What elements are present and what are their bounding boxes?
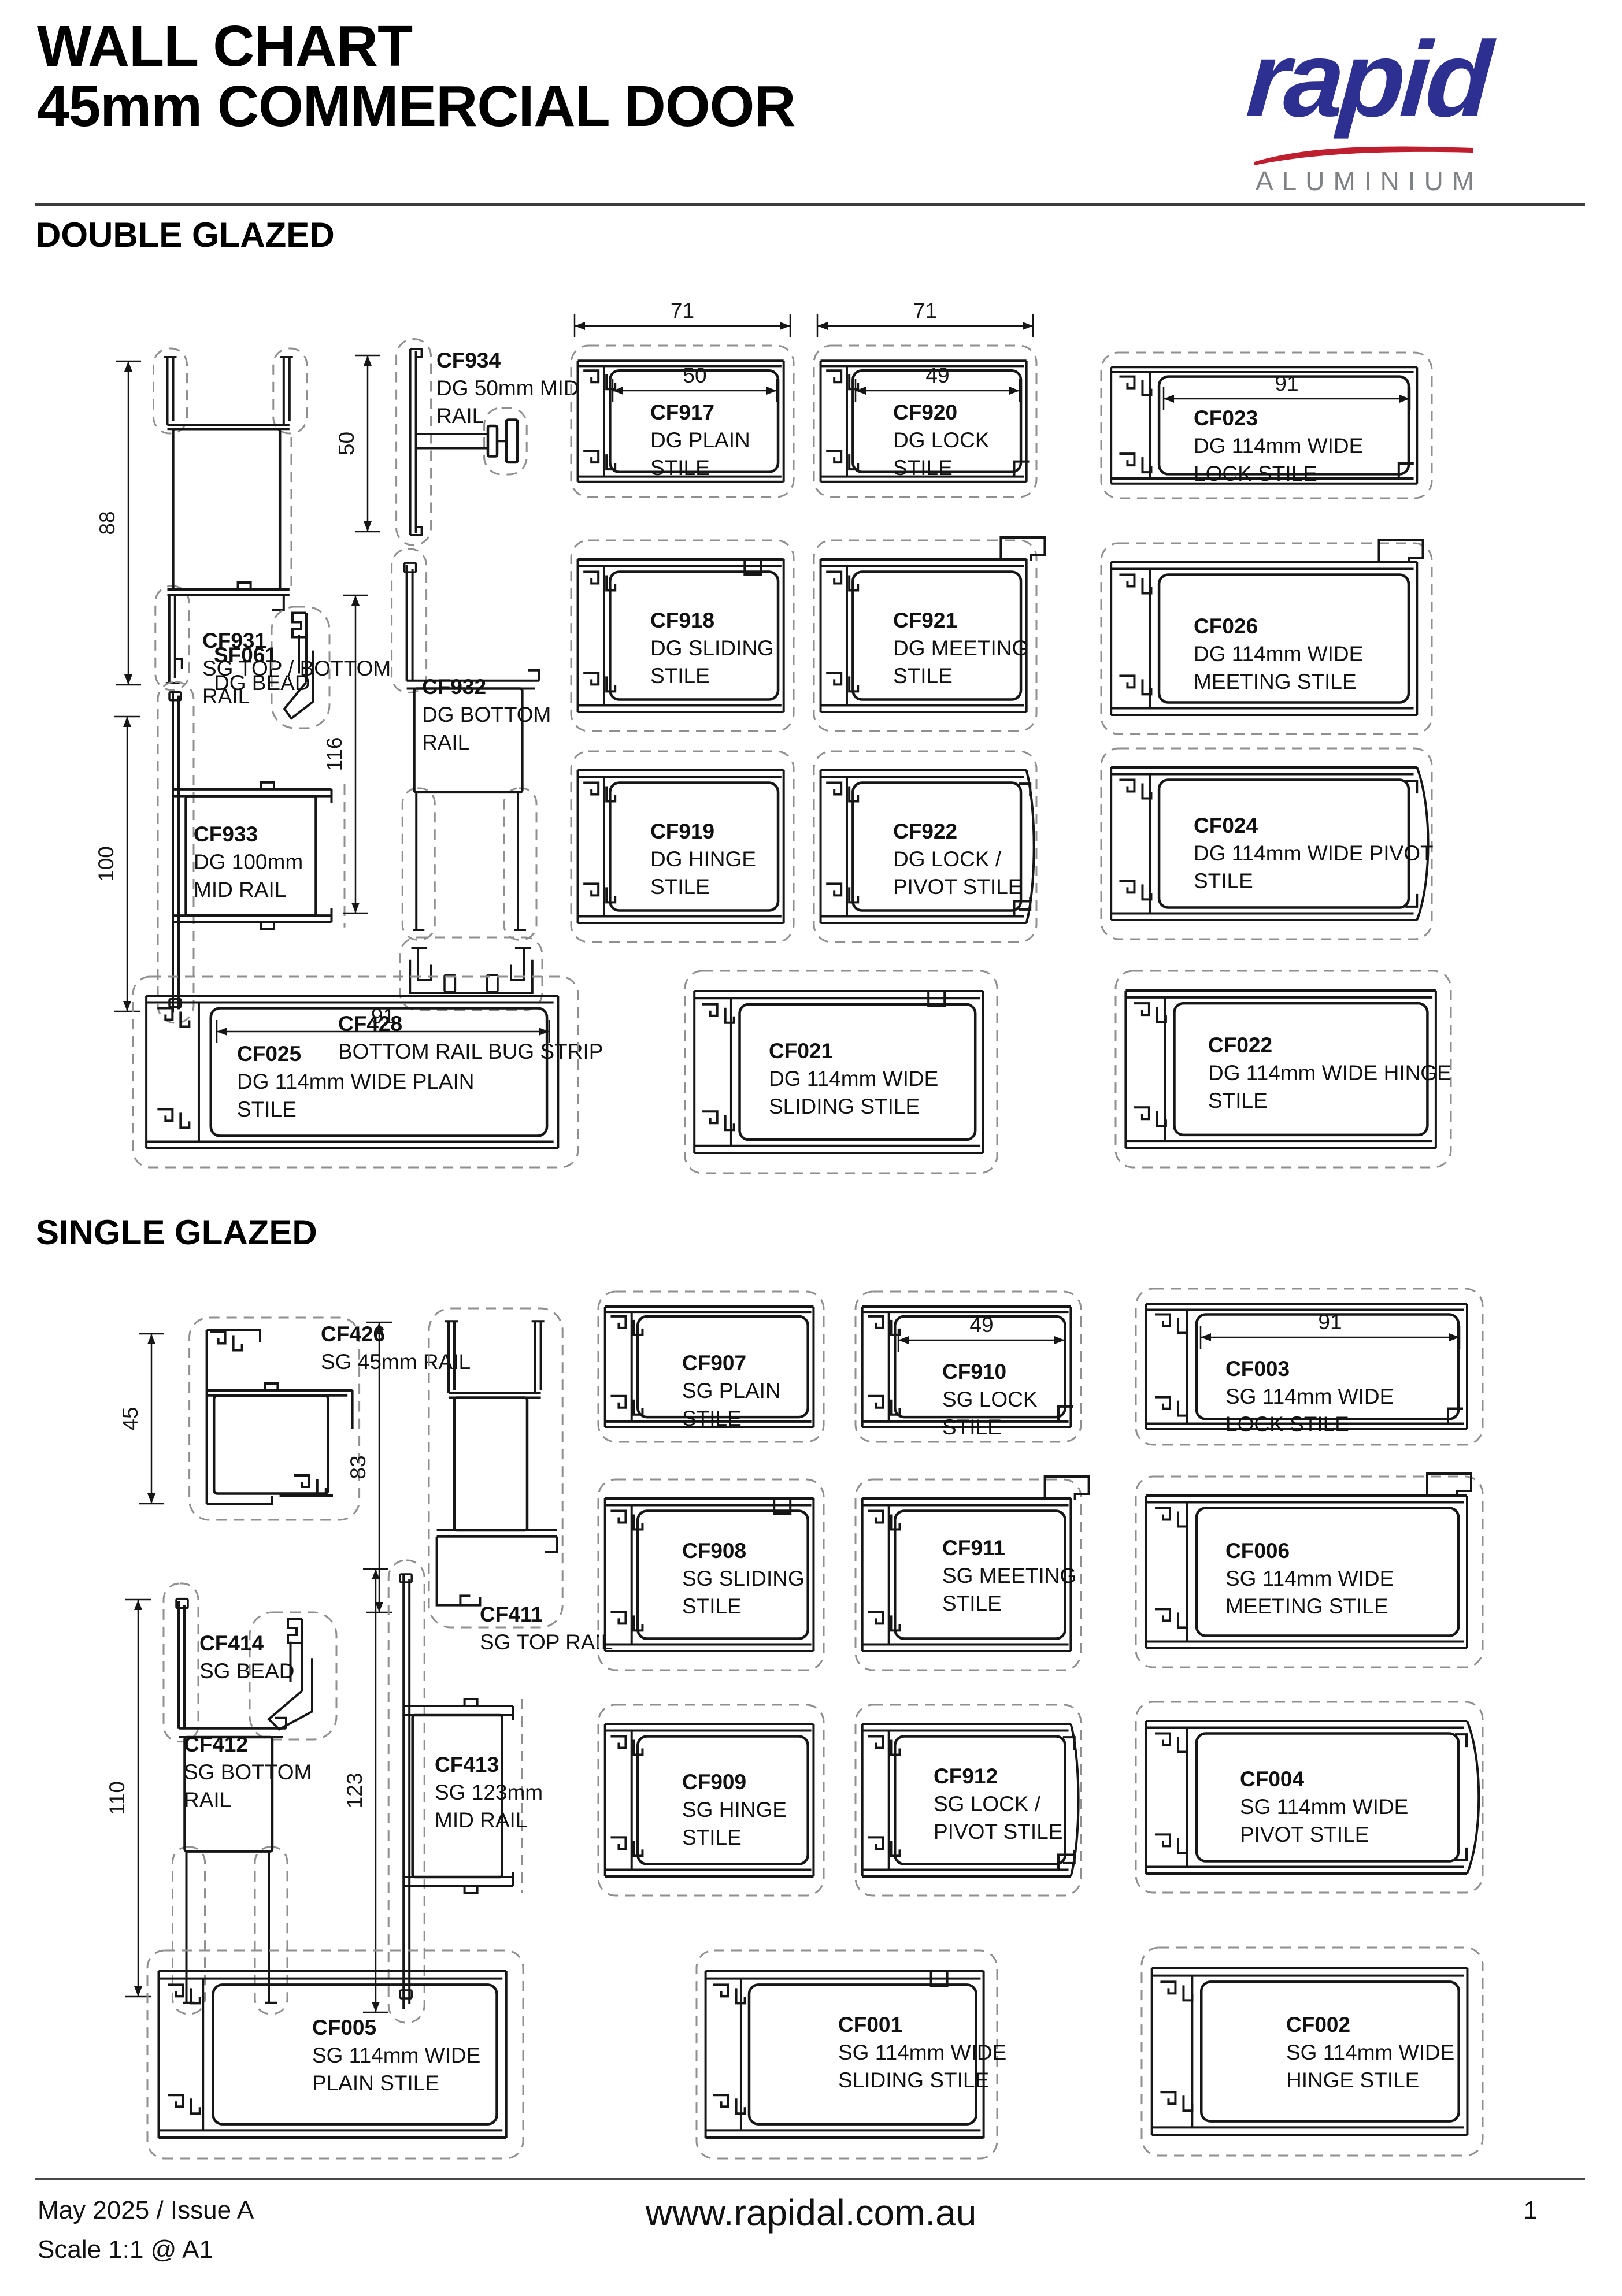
profile-desc-line: RAIL <box>436 402 579 430</box>
profile-desc-line: DG LOCK <box>893 426 990 454</box>
profile-desc-line: DG PLAIN <box>650 426 750 454</box>
profile-label-cf910: CF910SG LOCKSTILE <box>942 1358 1038 1441</box>
rapid-aluminium-logo: rapid ALUMINIUM <box>1247 22 1571 138</box>
profile-label-cf006: CF006SG 114mm WIDEMEETING STILE <box>1225 1537 1394 1620</box>
profile-label-cf005: CF005SG 114mm WIDEPLAIN STILE <box>312 2014 480 2097</box>
svg-text:71: 71 <box>671 299 694 322</box>
logo-brand-text: rapid <box>1243 22 1575 138</box>
profile-label-cf918: CF918DG SLIDINGSTILE <box>650 607 774 690</box>
profile-desc-line: DG 114mm WIDE <box>769 1065 938 1093</box>
profile-desc-line: STILE <box>893 662 1028 690</box>
profile-label-cf909: CF909SG HINGESTILE <box>682 1768 787 1852</box>
svg-text:50: 50 <box>683 363 706 387</box>
profile-code: CF026 <box>1194 613 1363 640</box>
profile-desc-line: SG LOCK <box>942 1386 1038 1414</box>
profile-label-cf024: CF024DG 114mm WIDE PIVOTSTILE <box>1194 812 1434 895</box>
profile-code: CF920 <box>893 399 990 426</box>
profile-desc-line: SLIDING STILE <box>838 2067 1006 2094</box>
profile-label-cf003: CF003SG 114mm WIDELOCK STILE <box>1225 1355 1394 1438</box>
profile-desc-line: STILE <box>650 662 774 690</box>
profile-code: CF908 <box>682 1537 805 1565</box>
profile-code: CF934 <box>436 347 579 374</box>
profile-code: CF023 <box>1194 405 1363 432</box>
profile-label-cf917: CF917DG PLAINSTILE <box>650 399 750 482</box>
profile-code: CF003 <box>1225 1355 1394 1383</box>
profile-desc-line: SG 114mm WIDE <box>838 2039 1006 2067</box>
svg-text:116: 116 <box>323 737 346 771</box>
profile-desc-line: STILE <box>682 1405 781 1433</box>
footer-divider <box>35 2178 1585 2180</box>
profile-desc-line: RAIL <box>422 729 551 756</box>
profile-code: CF910 <box>942 1358 1038 1386</box>
profile-desc-line: STILE <box>650 873 756 901</box>
profile-desc-line: MEETING STILE <box>1225 1593 1394 1620</box>
profile-desc-line: HINGE STILE <box>1286 2067 1454 2094</box>
svg-text:49: 49 <box>969 1313 993 1337</box>
profile-desc-line: PIVOT STILE <box>893 873 1022 901</box>
svg-text:123: 123 <box>343 1773 366 1809</box>
profile-desc-line: STILE <box>650 454 750 482</box>
profile-label-cf907: CF907SG PLAINSTILE <box>682 1349 781 1433</box>
profile-desc-line: SG MEETING <box>942 1562 1076 1590</box>
profile-label-cf912: CF912SG LOCK /PIVOT STILE <box>934 1763 1062 1846</box>
svg-text:50: 50 <box>335 432 358 455</box>
profile-label-cf413: CF413SG 123mmMID RAIL <box>435 1751 543 1834</box>
profile-desc-line: DG 114mm WIDE PIVOT <box>1194 840 1434 867</box>
profile-label-cf412: CF412SG BOTTOMRAIL <box>184 1731 312 1814</box>
svg-text:91: 91 <box>1275 372 1298 395</box>
profile-code: CF412 <box>184 1731 312 1759</box>
profile-code: CF004 <box>1240 1765 1408 1793</box>
svg-text:83: 83 <box>346 1455 370 1479</box>
profile-code: CF413 <box>435 1751 543 1779</box>
profile-label-cf921: CF921DG MEETINGSTILE <box>893 607 1028 690</box>
profile-desc-line: LOCK STILE <box>1225 1411 1394 1438</box>
svg-text:45: 45 <box>118 1407 142 1430</box>
profile-label-cf001: CF001SG 114mm WIDESLIDING STILE <box>838 2011 1006 2094</box>
footer-page-number: 1 <box>1480 2196 1538 2225</box>
profile-desc-line: DG BOTTOM <box>422 701 551 729</box>
svg-text:88: 88 <box>95 511 119 535</box>
profile-desc-line: STILE <box>237 1096 475 1123</box>
profile-desc-line: SG SLIDING <box>682 1565 805 1593</box>
profile-code: CF001 <box>838 2011 1006 2039</box>
profile-label-cf004: CF004SG 114mm WIDEPIVOT STILE <box>1240 1765 1408 1849</box>
profile-desc-line: SG BOTTOM <box>184 1759 312 1786</box>
profile-code: CF917 <box>650 399 750 426</box>
svg-text:110: 110 <box>105 1781 129 1815</box>
profile-desc-line: SG PLAIN <box>682 1377 781 1405</box>
profile-code: CF006 <box>1225 1537 1394 1565</box>
profile-desc-line: STILE <box>682 1824 787 1852</box>
profile-code: SF061 <box>214 641 310 669</box>
profile-code: CF918 <box>650 607 774 635</box>
profile-desc-line: RAIL <box>184 1786 312 1814</box>
profile-desc-line: DG 114mm WIDE <box>1194 640 1363 668</box>
profile-desc-line: MEETING STILE <box>1194 668 1363 696</box>
profile-desc-line: STILE <box>1208 1087 1451 1115</box>
profile-label-cf002: CF002SG 114mm WIDEHINGE STILE <box>1286 2011 1454 2094</box>
profile-code: CF909 <box>682 1768 787 1796</box>
profile-desc-line: DG 114mm WIDE PLAIN <box>237 1068 475 1096</box>
profile-label-cf021: CF021DG 114mm WIDESLIDING STILE <box>769 1037 938 1121</box>
profile-code: CF021 <box>769 1037 938 1065</box>
profile-label-cf922: CF922DG LOCK /PIVOT STILE <box>893 818 1022 901</box>
svg-text:49: 49 <box>925 363 949 387</box>
profile-desc-line: MID RAIL <box>435 1807 543 1834</box>
profile-code: CF932 <box>422 673 551 701</box>
wall-chart-page: WALL CHART 45mm COMMERCIAL DOOR rapid AL… <box>0 0 1622 2296</box>
profile-desc-line: SG 114mm WIDE <box>1286 2039 1454 2067</box>
logo-subtitle-text: ALUMINIUM <box>1256 165 1483 196</box>
profile-code: CF911 <box>942 1534 1076 1562</box>
logo-swoosh-icon <box>1253 144 1474 168</box>
page-title: WALL CHART 45mm COMMERCIAL DOOR <box>37 16 795 136</box>
profile-label-cf908: CF908SG SLIDINGSTILE <box>682 1537 805 1620</box>
section-heading-double-glazed: DOUBLE GLAZED <box>36 215 335 255</box>
profile-label-cf025: CF025DG 114mm WIDE PLAINSTILE <box>237 1040 475 1123</box>
profile-code: CF921 <box>893 607 1028 635</box>
profile-label-cf920: CF920DG LOCKSTILE <box>893 399 990 482</box>
svg-text:71: 71 <box>913 299 937 322</box>
profile-desc-line: SG 114mm WIDE <box>312 2042 480 2069</box>
section-heading-single-glazed: SINGLE GLAZED <box>36 1212 317 1252</box>
profile-code: CF907 <box>682 1349 781 1377</box>
profile-desc-line: DG SLIDING <box>650 635 774 662</box>
profile-desc-line: SLIDING STILE <box>769 1093 938 1121</box>
svg-text:91: 91 <box>371 1004 395 1028</box>
profile-code: CF933 <box>194 821 303 848</box>
profile-desc-line: DG LOCK / <box>893 845 1022 873</box>
footer-scale-text: Scale 1:1 @ A1 <box>38 2235 213 2264</box>
profile-label-cf919: CF919DG HINGESTILE <box>650 818 756 901</box>
svg-text:100: 100 <box>94 846 118 882</box>
profile-label-cf023: CF023DG 114mm WIDELOCK STILE <box>1194 405 1363 488</box>
profile-desc-line: DG 100mm <box>194 848 303 876</box>
profile-code: CF022 <box>1208 1032 1451 1059</box>
profile-desc-line: MID RAIL <box>194 876 303 904</box>
profile-code: CF024 <box>1194 812 1434 840</box>
profile-desc-line: SG LOCK / <box>934 1790 1062 1818</box>
profile-desc-line: SG 123mm <box>435 1779 543 1807</box>
profile-label-cf932: CF932DG BOTTOMRAIL <box>422 673 551 756</box>
profile-desc-line: DG 114mm WIDE HINGE <box>1208 1059 1451 1087</box>
profile-label-cf911: CF911SG MEETINGSTILE <box>942 1534 1076 1618</box>
title-line2: 45mm COMMERCIAL DOOR <box>37 76 795 136</box>
profile-desc-line: STILE <box>682 1593 805 1620</box>
profile-code: CF912 <box>934 1763 1062 1790</box>
profile-desc-line: DG 114mm WIDE <box>1194 432 1363 460</box>
profile-label-cf934: CF934DG 50mm MIDRAIL <box>436 347 579 430</box>
profile-desc-line: LOCK STILE <box>1194 460 1363 488</box>
profile-desc-line: PIVOT STILE <box>1240 1821 1408 1849</box>
profile-desc-line: PLAIN STILE <box>312 2069 480 2097</box>
profile-desc-line: DG 50mm MID <box>436 374 579 402</box>
profile-code: CF005 <box>312 2014 480 2042</box>
profile-desc-line: DG MEETING <box>893 635 1028 662</box>
profile-label-cf022: CF022DG 114mm WIDE HINGESTILE <box>1208 1032 1451 1115</box>
profile-label-cf933: CF933DG 100mmMID RAIL <box>194 821 303 904</box>
profile-desc-line: DG HINGE <box>650 845 756 873</box>
profile-code: CF002 <box>1286 2011 1454 2039</box>
footer-website-text: www.rapidal.com.au <box>0 2191 1622 2234</box>
profile-desc-line: STILE <box>1194 867 1434 895</box>
header-divider <box>35 203 1585 206</box>
profile-desc-line: SG HINGE <box>682 1796 787 1824</box>
profile-desc-line: STILE <box>942 1590 1076 1618</box>
profile-desc-line: SG 114mm WIDE <box>1240 1793 1408 1821</box>
profile-desc-line: STILE <box>893 454 990 482</box>
profile-code: CF922 <box>893 818 1022 845</box>
profile-desc-line: SG 114mm WIDE <box>1225 1383 1394 1411</box>
profile-desc-line: STILE <box>942 1414 1038 1441</box>
title-line1: WALL CHART <box>37 16 795 76</box>
profile-desc-line: PIVOT STILE <box>934 1818 1062 1846</box>
svg-text:91: 91 <box>1318 1310 1342 1334</box>
profile-label-cf026: CF026DG 114mm WIDEMEETING STILE <box>1194 613 1363 696</box>
profile-desc-line: SG 114mm WIDE <box>1225 1565 1394 1593</box>
profile-code: CF025 <box>237 1040 475 1068</box>
profile-code: CF919 <box>650 818 756 845</box>
